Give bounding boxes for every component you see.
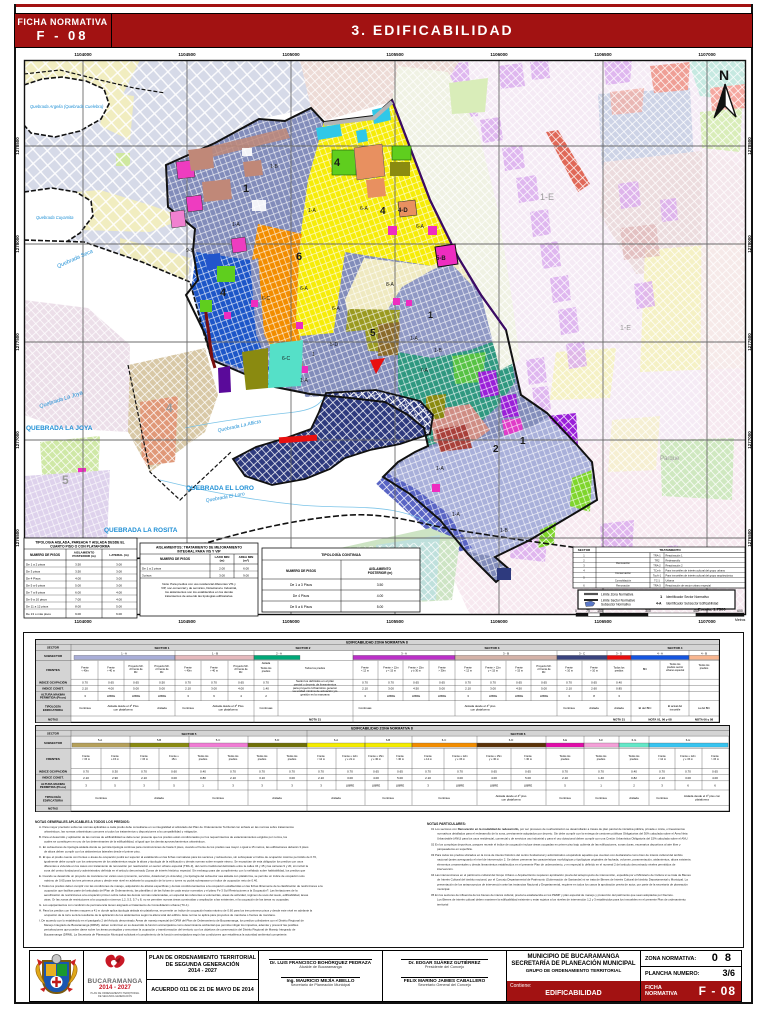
svg-text:1106000: 1106000 — [490, 52, 508, 57]
svg-text:Manejo Integrado de Bucaramang: Manejo Integrado de Bucaramanga (DRMI), … — [44, 923, 299, 927]
svg-text:TC-1: TC-1 — [654, 578, 660, 582]
svg-text:Identificador Sector Normativo: Identificador Sector Normativo — [666, 595, 709, 599]
svg-text:6-A: 6-A — [300, 286, 308, 292]
svg-text:intervención.: intervención. — [437, 867, 454, 871]
svg-text:1105000: 1105000 — [282, 52, 300, 57]
svg-text:C. En subsectores de tipolog: C. En subsectores de tipología aislada d… — [39, 845, 309, 849]
svg-text:7-A: 7-A — [420, 368, 428, 374]
svg-text:Para inmuebles de interés cult: Para inmuebles de interés cultural del g… — [666, 573, 734, 577]
svg-text:4-A: 4-A — [656, 602, 662, 606]
svg-text:1-A: 1-A — [436, 466, 444, 472]
svg-text:G. Los equipamientos con con: G. Los equipamientos con condición de pe… — [39, 903, 190, 907]
svg-text:3.00: 3.00 — [116, 563, 122, 567]
svg-text:igualmente debe cumplir con lo: igualmente debe cumplir con los anteceso… — [44, 860, 304, 864]
svg-text:1104000: 1104000 — [74, 52, 92, 57]
svg-text:Nota: Para predios con uso res: Nota: Para predios con uso residencial d… — [161, 582, 237, 598]
svg-text:1104500: 1104500 — [178, 52, 196, 57]
svg-text:máximo de 0.65 para los tres p: máximo de 0.65 para los tres primeros pi… — [44, 879, 258, 883]
svg-text:presentación de los anteproyec: presentación de los anteproyectos de int… — [437, 882, 688, 886]
svg-text:1277500: 1277500 — [15, 333, 20, 351]
svg-text:4: 4 — [220, 287, 227, 299]
svg-text:1-E: 1-E — [540, 192, 554, 202]
svg-text:5.00: 5.00 — [116, 605, 122, 609]
svg-text:75: 75 — [586, 609, 590, 613]
svg-text:9.00: 9.00 — [75, 612, 81, 616]
svg-text:Reactivación de sector urbano: Reactivación de sector urbano especial — [666, 583, 712, 587]
svg-text:1106000: 1106000 — [490, 619, 508, 624]
svg-text:4: 4 — [334, 157, 341, 169]
svg-text:N: N — [719, 67, 729, 83]
svg-text:1278000: 1278000 — [15, 235, 20, 253]
svg-text:2.00: 2.00 — [219, 567, 225, 571]
svg-text:Parque: Parque — [660, 456, 680, 462]
svg-text:03 Para todos los predios ub: 03 Para todos los predios ubicados en la… — [431, 853, 683, 857]
svg-text:LATERAL (m): LATERAL (m) — [109, 553, 128, 557]
svg-text:E. Cuando se desarrolle un p: E. Cuando se desarrolle un proyecto de m… — [39, 874, 305, 878]
svg-text:1-A: 1-A — [300, 378, 308, 384]
svg-text:SECTOR: SECTOR — [578, 548, 591, 552]
svg-text:Para inmuebles de interés cult: Para inmuebles de interés cultural del g… — [666, 568, 726, 572]
svg-text:4: 4 — [380, 206, 386, 217]
svg-text:1104000: 1104000 — [74, 619, 92, 624]
svg-text:TR2: TR2 — [655, 558, 660, 562]
svg-text:zona del centro fundacional y: zona del centro fundacional y administra… — [44, 869, 306, 873]
svg-text:02 En los complejos deportiv: 02 En los complejos deportivos, parques … — [431, 842, 681, 846]
svg-text:1105500: 1105500 — [386, 52, 404, 57]
svg-text:Renovación: Renovación — [616, 561, 630, 565]
svg-text:3.50: 3.50 — [377, 583, 384, 587]
svg-text:De 11 a 12 pisos: De 11 a 12 pisos — [26, 605, 49, 609]
svg-text:1-A: 1-A — [410, 336, 418, 342]
svg-text:600: 600 — [737, 609, 743, 613]
svg-text:6-A: 6-A — [360, 206, 368, 212]
svg-text:3.00: 3.00 — [219, 574, 225, 578]
svg-text:De 1 a 2 pisos: De 1 a 2 pisos — [142, 567, 162, 571]
svg-text:5.00: 5.00 — [75, 584, 81, 588]
svg-text:(m²): (m²) — [243, 559, 249, 563]
svg-text:6: 6 — [296, 251, 302, 263]
svg-text:De 1 a 2 pisos: De 1 a 2 pisos — [26, 563, 46, 567]
svg-text:diferentes a vivienda en los c: diferentes a vivienda en los casos con t… — [44, 864, 308, 868]
svg-text:1: 1 — [243, 183, 249, 195]
svg-text:elementos ornamentales y demás: elementos ornamentales y demás lineamien… — [437, 862, 676, 866]
svg-text:B. Para el desarrollo y apli: B. Para el desarrollo y aplicación de la… — [39, 835, 288, 839]
svg-text:Identificador Subsector Edific: Identificador Subsector Edificabilidad — [666, 602, 718, 606]
svg-text:ocupación que facilitan parte: ocupación que facilitan parte del articu… — [44, 889, 298, 893]
svg-text:de altura deben cumplir con lo: de altura deben cumplir con los aislamie… — [44, 850, 141, 854]
svg-text:2: 2 — [493, 444, 499, 455]
svg-text:NOTAS PARTICULARES:: NOTAS PARTICULARES: — [427, 822, 466, 826]
svg-text:5: 5 — [370, 328, 376, 339]
svg-text:NUMERO DE PISOS: NUMERO DE PISOS — [30, 553, 60, 557]
svg-text:D. El que el predio cuente c: D. El que el predio cuente con frentes o… — [39, 855, 317, 859]
svg-text:De 3 pisos: De 3 pisos — [26, 570, 41, 574]
svg-text:NUMERO DE PISOS: NUMERO DE PISOS — [286, 569, 316, 573]
svg-text:1: 1 — [428, 310, 433, 320]
svg-text:450: 450 — [693, 609, 699, 613]
svg-text:3.50: 3.50 — [75, 570, 81, 574]
svg-text:1: 1 — [312, 352, 315, 358]
svg-text:TCn-b: TCn-b — [653, 568, 661, 572]
svg-text:3.00: 3.00 — [116, 577, 122, 581]
svg-text:Bucaramanga (DRMI), La Secreta: Bucaramanga (DRMI), La Secretaría de Pla… — [44, 932, 287, 936]
svg-text:Los Bienes de interés cultural: Los Bienes de interés cultural deben man… — [437, 898, 686, 902]
svg-text:I. De acuerdo con lo estable: I. De acuerdo con lo establecido en el p… — [39, 919, 304, 923]
svg-text:cuales se constituyen en uno d: cuales se constituyen en uno de los dete… — [44, 840, 206, 844]
svg-text:CUARTO PISO O CON PLATAFORMA: CUARTO PISO O CON PLATAFORMA — [50, 545, 110, 549]
svg-text:Subsector Normativo: Subsector Normativo — [601, 602, 631, 606]
svg-text:4.00: 4.00 — [116, 591, 122, 595]
svg-text:1276500: 1276500 — [15, 529, 20, 547]
svg-text:1278000: 1278000 — [747, 235, 752, 253]
svg-text:Conservación: Conservación — [615, 571, 631, 575]
svg-text:De 9 a 10 pisos: De 9 a 10 pisos — [26, 598, 47, 602]
svg-text:3.00: 3.00 — [116, 570, 122, 574]
svg-text:150: 150 — [597, 609, 603, 613]
svg-text:Reactivación 2: Reactivación 2 — [666, 563, 684, 567]
svg-text:perturbaciones que pueden dars: perturbaciones que pueden darse sobre lo… — [44, 928, 296, 932]
svg-text:Urbanizable (ANU) para los uso: Urbanizable (ANU) para los usos residenc… — [437, 836, 688, 840]
svg-text:1278500: 1278500 — [747, 137, 752, 155]
svg-text:6.00: 6.00 — [75, 591, 81, 595]
svg-text:POSTERIOR (m): POSTERIOR (m) — [368, 571, 393, 575]
svg-text:1: 1 — [520, 436, 526, 447]
svg-text:5-B: 5-B — [436, 256, 446, 262]
svg-text:Reactivación 1: Reactivación 1 — [666, 553, 684, 557]
svg-text:8.00: 8.00 — [75, 605, 81, 609]
svg-text:otras. Or las zonas de restric: otras. Or las zonas de restricciones a l… — [44, 898, 290, 902]
svg-text:0: 0 — [575, 609, 577, 613]
svg-text:9-B: 9-B — [186, 248, 194, 254]
svg-text:1104500: 1104500 — [178, 619, 196, 624]
svg-text:3.00: 3.00 — [116, 584, 122, 588]
svg-text:Redesarrollo: Redesarrollo — [666, 558, 681, 562]
svg-text:De 13 o más pisos: De 13 o más pisos — [26, 612, 51, 616]
svg-text:Límite Zona Normativa: Límite Zona Normativa — [601, 593, 633, 597]
svg-text:1277000: 1277000 — [747, 431, 752, 449]
svg-text:Urbana: Urbana — [666, 578, 675, 582]
svg-text:1-B: 1-B — [270, 164, 278, 170]
svg-text:TRA-2: TRA-2 — [653, 563, 661, 567]
svg-text:De 1 a 3 Pisos: De 1 a 3 Pisos — [290, 583, 312, 587]
svg-text:Renovación: Renovación — [616, 583, 630, 587]
svg-text:Escala: 1:7500: Escala: 1:7500 — [698, 607, 726, 612]
svg-text:1107000: 1107000 — [698, 52, 716, 57]
svg-text:QUEBRADA LA JOYA: QUEBRADA LA JOYA — [26, 425, 93, 432]
svg-text:NOTAS GENERALES APLICABLES A T: NOTAS GENERALES APLICABLES A TODOS LOS P… — [35, 820, 130, 824]
svg-text:NUMERO DE PISOS: NUMERO DE PISOS — [160, 557, 190, 561]
svg-text:1-A: 1-A — [452, 512, 460, 518]
svg-text:5-D: 5-D — [330, 342, 338, 348]
svg-text:QUEBRADA LA ROSITA: QUEBRADA LA ROSITA — [104, 527, 178, 534]
svg-text:De 4 Pisos: De 4 Pisos — [293, 594, 310, 598]
svg-text:ocupación de la torre será la: ocupación de la torre será la resultante… — [44, 913, 276, 917]
svg-text:1106500: 1106500 — [594, 619, 612, 624]
svg-text:De 4 Pisos: De 4 Pisos — [26, 577, 41, 581]
svg-text:urbanísticos, las normas urban: urbanísticos, las normas urbanísticas co… — [44, 830, 198, 834]
svg-text:nacional (antes avenguardo e: nacional (antes avenguardo el nivel de i… — [437, 858, 692, 862]
svg-text:6-C: 6-C — [282, 356, 290, 362]
svg-text:3.50: 3.50 — [75, 563, 81, 567]
svg-text:parqueaderos en superficie.: parqueaderos en superficie. — [437, 847, 473, 851]
svg-text:TRA-3: TRA-3 — [653, 583, 661, 587]
svg-text:Quebrada Argelia (Quebrada Cue: Quebrada Argelia (Quebrada Cuelebra) — [30, 104, 104, 109]
svg-text:1105500: 1105500 — [386, 619, 404, 624]
svg-text:1-B: 1-B — [434, 348, 442, 354]
svg-text:Metros: Metros — [735, 618, 746, 622]
svg-text:9.00: 9.00 — [243, 574, 249, 578]
svg-text:5.00: 5.00 — [377, 605, 384, 609]
svg-text:1277000: 1277000 — [15, 431, 20, 449]
svg-text:de Interés Cultural del ámbito: de Interés Cultural del ámbito nacional,… — [437, 878, 688, 882]
svg-text:TcuA-1: TcuA-1 — [653, 573, 662, 577]
svg-text:1-E: 1-E — [620, 325, 631, 332]
svg-text:F. Todos los predios deben c: F. Todos los predios deben cumplir con l… — [39, 884, 323, 888]
svg-text:1278500: 1278500 — [15, 137, 20, 155]
svg-text:(m): (m) — [220, 559, 225, 563]
svg-text:3 pisos: 3 pisos — [142, 574, 152, 578]
svg-text:5: 5 — [62, 473, 69, 487]
svg-text:6.00: 6.00 — [243, 567, 249, 571]
svg-text:6-A: 6-A — [416, 224, 424, 230]
svg-text:8-A: 8-A — [386, 282, 394, 288]
svg-text:normativos detallados para el: normativos detallados para el redesarrol… — [437, 832, 688, 836]
svg-text:4.00: 4.00 — [75, 577, 81, 581]
svg-text:Consolidación: Consolidación — [615, 578, 632, 582]
svg-text:1-A: 1-A — [308, 208, 316, 214]
svg-text:1107000: 1107000 — [698, 619, 716, 624]
svg-text:H. Para los predios con fren: H. Para los predios con frentes mayores … — [39, 909, 313, 913]
svg-text:INTEGRAL PARA VIS Y VIP: INTEGRAL PARA VIS Y VIP — [177, 550, 221, 554]
svg-text:6-A: 6-A — [332, 306, 340, 312]
svg-text:04 Las intervenciones en el: 04 Las intervenciones en el patrimonio c… — [431, 873, 691, 877]
svg-text:Quebrada Cuyamita: Quebrada Cuyamita — [36, 215, 74, 220]
svg-text:1106500: 1106500 — [594, 52, 612, 57]
svg-text:POSTERIOR (m): POSTERIOR (m) — [72, 554, 95, 558]
svg-text:1276500: 1276500 — [747, 529, 752, 547]
svg-text:4-D: 4-D — [398, 208, 408, 214]
svg-text:05 En los sectores de influe: 05 En los sectores de influencia de los … — [431, 893, 674, 897]
svg-text:territorial: territorial — [437, 902, 449, 906]
svg-text:De 5 a 6 Pisos: De 5 a 6 Pisos — [290, 605, 312, 609]
svg-text:TIPOLOGÍA CONTINUA: TIPOLOGÍA CONTINUA — [321, 552, 361, 557]
svg-text:4.00: 4.00 — [116, 598, 122, 602]
svg-text:TRATAMIENTO: TRATAMIENTO — [659, 548, 681, 552]
svg-text:7.00: 7.00 — [75, 598, 81, 602]
svg-text:4: 4 — [166, 401, 173, 415]
svg-text:1-B: 1-B — [500, 528, 508, 534]
svg-text:6-C: 6-C — [262, 296, 270, 302]
svg-text:municipal.: municipal. — [437, 887, 450, 891]
svg-text:6.00: 6.00 — [116, 612, 122, 616]
svg-text:4.00: 4.00 — [377, 594, 384, 598]
svg-text:A. Para mayor precisión sobr: A. Para mayor precisión sobre las normas… — [39, 825, 294, 829]
svg-text:De 7 a 8 pisos: De 7 a 8 pisos — [26, 591, 46, 595]
svg-text:300: 300 — [645, 609, 651, 613]
svg-text:01 Los sectores con Renovaci: 01 Los sectores con Renovación en la mod… — [431, 827, 685, 831]
svg-text:1277500: 1277500 — [747, 333, 752, 351]
svg-text:TRA-1: TRA-1 — [653, 553, 661, 557]
svg-text:aeroificación de restricciones: aeroificación de restricciones a la ocup… — [44, 893, 309, 897]
svg-text:1105000: 1105000 — [282, 619, 300, 624]
svg-text:De 5 a 6 pisos: De 5 a 6 pisos — [26, 584, 46, 588]
svg-text:1-A: 1-A — [232, 222, 240, 228]
